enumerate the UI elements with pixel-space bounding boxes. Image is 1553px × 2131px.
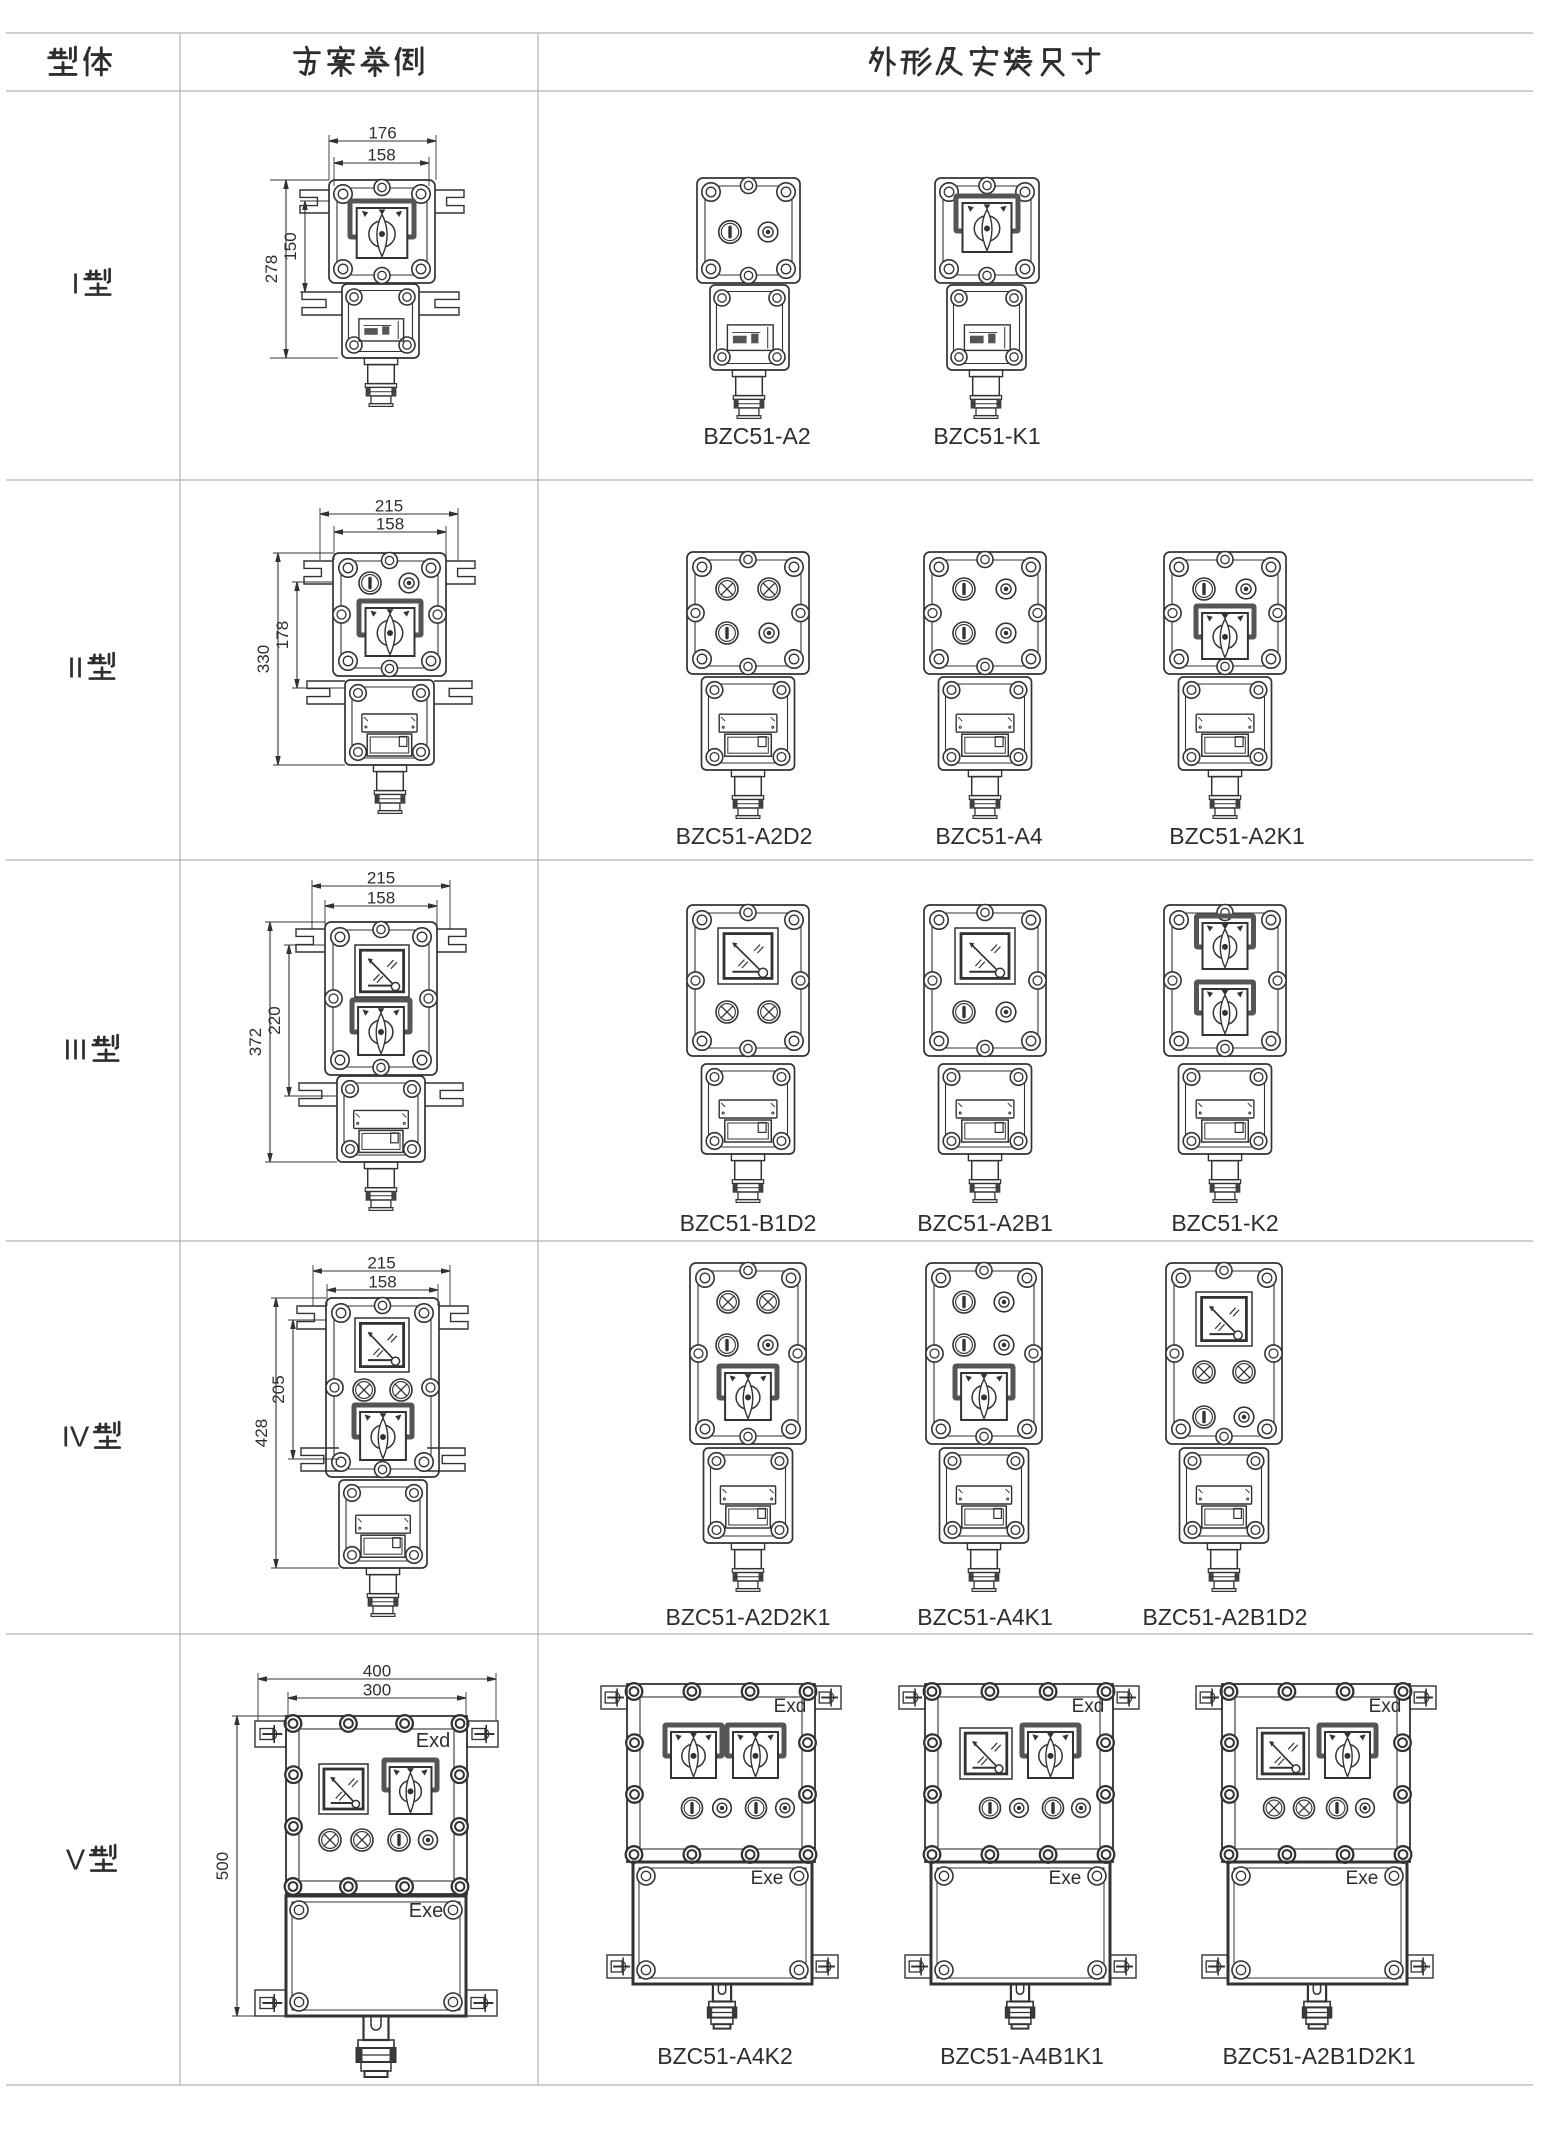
svg-text:Exd: Exd xyxy=(774,1696,807,1717)
svg-text:BZC51-K1: BZC51-K1 xyxy=(933,423,1040,449)
svg-text:500: 500 xyxy=(213,1852,232,1880)
svg-text:215: 215 xyxy=(375,497,403,516)
svg-text:Exd: Exd xyxy=(1369,1696,1402,1717)
svg-text:158: 158 xyxy=(368,1273,396,1292)
svg-text:BZC51-A2B1: BZC51-A2B1 xyxy=(917,1210,1053,1236)
svg-text:BZC51-A4: BZC51-A4 xyxy=(935,823,1043,849)
svg-text:205: 205 xyxy=(269,1375,288,1403)
svg-text:BZC51-B1D2: BZC51-B1D2 xyxy=(680,1210,817,1236)
svg-text:278: 278 xyxy=(262,255,281,283)
svg-text:BZC51-A2K1: BZC51-A2K1 xyxy=(1169,823,1305,849)
svg-text:176: 176 xyxy=(368,124,396,143)
svg-text:Exe: Exe xyxy=(409,1900,443,1922)
svg-text:372: 372 xyxy=(246,1028,265,1056)
svg-text:V: V xyxy=(66,1844,86,1876)
svg-text:400: 400 xyxy=(363,1662,391,1681)
svg-text:178: 178 xyxy=(273,621,292,649)
svg-text:BZC51-A4K1: BZC51-A4K1 xyxy=(917,1604,1053,1630)
svg-text:III: III xyxy=(63,1034,87,1066)
svg-text:BZC51-A2B1D2K1: BZC51-A2B1D2K1 xyxy=(1222,2043,1415,2069)
svg-text:BZC51-A2: BZC51-A2 xyxy=(703,423,810,449)
svg-text:300: 300 xyxy=(363,1681,391,1700)
svg-text:BZC51-A2D2: BZC51-A2D2 xyxy=(676,823,813,849)
svg-text:Exe: Exe xyxy=(751,1868,784,1889)
svg-text:Exe: Exe xyxy=(1049,1868,1082,1889)
svg-text:Exe: Exe xyxy=(1346,1868,1379,1889)
svg-text:Exd: Exd xyxy=(416,1730,450,1752)
svg-text:215: 215 xyxy=(367,869,395,888)
svg-text:215: 215 xyxy=(367,1254,395,1273)
svg-text:BZC51-A4K2: BZC51-A4K2 xyxy=(657,2043,793,2069)
svg-text:IV: IV xyxy=(62,1421,90,1453)
svg-text:158: 158 xyxy=(376,515,404,534)
svg-text:BZC51-A2B1D2: BZC51-A2B1D2 xyxy=(1143,1604,1308,1630)
svg-text:BZC51-K2: BZC51-K2 xyxy=(1171,1210,1278,1236)
svg-text:158: 158 xyxy=(367,889,395,908)
svg-text:BZC51-A4B1K1: BZC51-A4B1K1 xyxy=(940,2043,1104,2069)
svg-text:158: 158 xyxy=(367,146,395,165)
svg-text:I: I xyxy=(71,268,79,300)
svg-text:428: 428 xyxy=(252,1419,271,1447)
svg-text:Exd: Exd xyxy=(1072,1696,1105,1717)
svg-text:BZC51-A2D2K1: BZC51-A2D2K1 xyxy=(666,1604,831,1630)
svg-text:330: 330 xyxy=(254,645,273,673)
svg-text:220: 220 xyxy=(265,1006,284,1034)
svg-text:II: II xyxy=(67,652,83,684)
svg-text:150: 150 xyxy=(281,232,300,260)
